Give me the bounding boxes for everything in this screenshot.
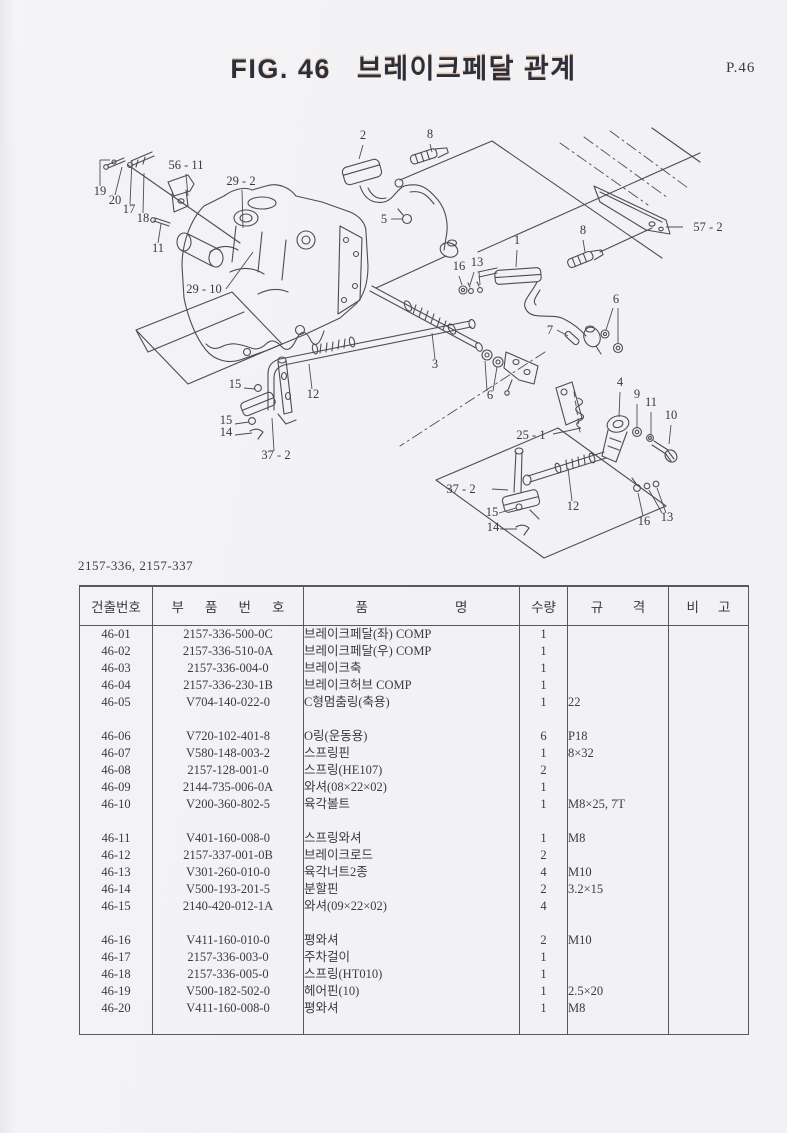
callout-leader-line <box>492 489 508 490</box>
callout-13: 13 <box>471 255 484 269</box>
qty-cell: 2 <box>520 762 568 779</box>
callout-14: 14 <box>220 425 233 439</box>
qty-cell: 1 <box>520 830 568 847</box>
table-row: 46-20V411-160-008-0평와셔1M8 <box>80 1000 749 1017</box>
callout-leader-line <box>115 167 122 195</box>
spec-cell: M10 <box>568 864 669 881</box>
column-header-remark: 비고 <box>669 586 749 626</box>
part-no-cell: V411-160-008-0 <box>153 1000 304 1017</box>
empty-cell <box>304 711 520 728</box>
empty-cell <box>568 813 669 830</box>
part-no-cell: 2157-336-004-0 <box>153 660 304 677</box>
part-no-cell: 2157-336-510-0A <box>153 643 304 660</box>
callout-leader-line <box>432 333 435 359</box>
callout-leader-line <box>606 308 613 330</box>
part-no-cell: V704-140-022-0 <box>153 694 304 711</box>
table-row: 46-07V580-148-003-2스프링핀18×32 <box>80 745 749 762</box>
callout-leader-line <box>583 240 585 252</box>
part-name-cell: 브레이크페달(좌) COMP <box>304 626 520 644</box>
qty-cell: 6 <box>520 728 568 745</box>
table-row: 46-14V500-193-201-5분할핀23.2×15 <box>80 881 749 898</box>
part-no-cell: 2157-337-001-0B <box>153 847 304 864</box>
table-row: 46-05V704-140-022-0C형멈춤링(축용)122 <box>80 694 749 711</box>
table-row: 46-122157-337-001-0B브레이크로드2 <box>80 847 749 864</box>
callout-leader-line <box>669 425 671 444</box>
qty-cell: 1 <box>520 677 568 694</box>
spec-cell <box>568 660 669 677</box>
empty-cell <box>669 915 749 932</box>
spec-cell: M8 <box>568 830 669 847</box>
qty-cell: 1 <box>520 796 568 813</box>
item-no-cell: 46-12 <box>80 847 153 864</box>
table-row: 46-182157-336-005-0스프링(HT010)1 <box>80 966 749 983</box>
callout-1: 1 <box>514 233 520 247</box>
part-name-cell: 스프링(HT010) <box>304 966 520 983</box>
part-name-cell: 브레이크로드 <box>304 847 520 864</box>
part-name-cell: 육각너트2종 <box>304 864 520 881</box>
callout-56-11: 56 - 11 <box>169 158 204 172</box>
callout-15: 15 <box>486 505 499 519</box>
callout-10: 10 <box>665 408 678 422</box>
column-header-spec: 규격 <box>568 586 669 626</box>
spec-cell <box>568 949 669 966</box>
table-row: 46-13V301-260-010-0육각너트2종4M10 <box>80 864 749 881</box>
spec-cell <box>568 626 669 644</box>
empty-cell <box>80 915 153 932</box>
table-row: 46-022157-336-510-0A브레이크페달(우) COMP1 <box>80 643 749 660</box>
callout-leader-line <box>272 418 274 451</box>
qty-cell: 2 <box>520 932 568 949</box>
callout-37-2: 37 - 2 <box>446 482 475 496</box>
remark-cell <box>669 660 749 677</box>
diagram-callouts: 1920171856 - 111129 - 229 - 102858116135… <box>94 127 723 534</box>
callout-37-2: 37 - 2 <box>261 448 290 462</box>
empty-cell <box>153 1017 304 1035</box>
item-no-cell: 46-09 <box>80 779 153 796</box>
table-row: 46-10V200-360-802-5육각볼트1M8×25, 7T <box>80 796 749 813</box>
spec-cell: M8×25, 7T <box>568 796 669 813</box>
callout-16: 16 <box>638 514 651 528</box>
item-no-cell: 46-20 <box>80 1000 153 1017</box>
callout-11: 11 <box>152 241 164 255</box>
remark-cell <box>669 728 749 745</box>
callout-leader-line <box>568 468 572 501</box>
part-no-cell: V411-160-010-0 <box>153 932 304 949</box>
filler-row <box>80 1017 749 1035</box>
qty-cell: 1 <box>520 660 568 677</box>
part-name-cell: 스프링핀 <box>304 745 520 762</box>
callout-20: 20 <box>109 193 122 207</box>
table-row: 46-042157-336-230-1B브레이크허브 COMP1 <box>80 677 749 694</box>
callout-leader-line <box>235 422 249 424</box>
part-name-cell: 브레이크허브 COMP <box>304 677 520 694</box>
table-row: 46-19V500-182-502-0헤어핀(10)12.5×20 <box>80 983 749 1000</box>
callout-57-2: 57 - 2 <box>693 220 722 234</box>
callout-17: 17 <box>123 202 136 216</box>
spec-cell <box>568 966 669 983</box>
callout-leader-line <box>359 145 363 159</box>
qty-cell: 4 <box>520 898 568 915</box>
spec-cell: 22 <box>568 694 669 711</box>
empty-cell <box>669 813 749 830</box>
table-row: 46-172157-336-003-0주차걸이1 <box>80 949 749 966</box>
spec-cell: 2.5×20 <box>568 983 669 1000</box>
item-no-cell: 46-18 <box>80 966 153 983</box>
table-row: 46-152140-420-012-1A와셔(09×22×02)4 <box>80 898 749 915</box>
callout-5: 5 <box>381 212 387 226</box>
spec-cell: 8×32 <box>568 745 669 762</box>
callout-leader-line <box>493 367 497 391</box>
table-row: 46-16V411-160-010-0평와셔2M10 <box>80 932 749 949</box>
callout-6: 6 <box>487 388 493 402</box>
callout-leader-line <box>479 272 480 285</box>
column-header-qty: 수량 <box>520 586 568 626</box>
table-row: 46-11V401-160-008-0스프링와셔1M8 <box>80 830 749 847</box>
remark-cell <box>669 847 749 864</box>
empty-cell <box>304 915 520 932</box>
item-no-cell: 46-16 <box>80 932 153 949</box>
callout-2: 2 <box>360 128 366 142</box>
part-name-cell: 평와셔 <box>304 932 520 949</box>
callout-leader-line <box>143 173 144 213</box>
qty-cell: 2 <box>520 847 568 864</box>
remark-cell <box>669 881 749 898</box>
callout-leader-line <box>459 276 462 285</box>
spec-cell <box>568 847 669 864</box>
spec-cell: M10 <box>568 932 669 949</box>
callout-leader-line <box>235 433 252 435</box>
item-no-cell: 46-14 <box>80 881 153 898</box>
part-no-cell: 2144-735-006-0A <box>153 779 304 796</box>
qty-cell: 1 <box>520 1000 568 1017</box>
item-no-cell: 46-08 <box>80 762 153 779</box>
qty-cell: 1 <box>520 779 568 796</box>
qty-cell: 1 <box>520 966 568 983</box>
callout-4: 4 <box>617 375 624 389</box>
remark-cell <box>669 864 749 881</box>
callout-25-1: 25 - 1 <box>516 428 545 442</box>
spec-cell: P18 <box>568 728 669 745</box>
item-no-cell: 46-04 <box>80 677 153 694</box>
empty-cell <box>520 1017 568 1035</box>
callout-13: 13 <box>661 510 674 524</box>
part-name-cell: 육각볼트 <box>304 796 520 813</box>
callout-12: 12 <box>307 387 320 401</box>
callout-leader-line <box>619 392 620 417</box>
part-no-cell: V500-193-201-5 <box>153 881 304 898</box>
part-no-cell: V200-360-802-5 <box>153 796 304 813</box>
qty-cell: 1 <box>520 983 568 1000</box>
spec-cell <box>568 643 669 660</box>
empty-cell <box>520 915 568 932</box>
part-name-cell: 브레이크페달(우) COMP <box>304 643 520 660</box>
callout-29-2: 29 - 2 <box>226 174 255 188</box>
empty-cell <box>153 711 304 728</box>
callout-leader-line <box>638 493 643 516</box>
empty-cell <box>304 813 520 830</box>
part-name-cell: 주차걸이 <box>304 949 520 966</box>
callout-leader-line <box>226 252 253 289</box>
callout-11: 11 <box>645 395 657 409</box>
part-no-cell: V401-160-008-0 <box>153 830 304 847</box>
callout-7: 7 <box>547 323 553 337</box>
part-no-cell: V500-182-502-0 <box>153 983 304 1000</box>
part-no-cell: V580-148-003-2 <box>153 745 304 762</box>
empty-cell <box>80 1017 153 1035</box>
empty-cell <box>520 711 568 728</box>
empty-cell <box>568 1017 669 1035</box>
empty-cell <box>669 1017 749 1035</box>
spacer-row <box>80 711 749 728</box>
callout-leader-line <box>309 364 312 389</box>
qty-cell: 1 <box>520 949 568 966</box>
callout-15: 15 <box>229 377 242 391</box>
remark-cell <box>669 745 749 762</box>
table-row: 46-092144-735-006-0A와셔(08×22×02)1 <box>80 779 749 796</box>
table-row: 46-032157-336-004-0브레이크축1 <box>80 660 749 677</box>
part-name-cell: 브레이크축 <box>304 660 520 677</box>
empty-cell <box>520 813 568 830</box>
item-no-cell: 46-03 <box>80 660 153 677</box>
empty-cell <box>80 711 153 728</box>
spec-cell: M8 <box>568 1000 669 1017</box>
qty-cell: 1 <box>520 694 568 711</box>
callout-3: 3 <box>432 357 438 371</box>
remark-cell <box>669 1000 749 1017</box>
part-name-cell: C형멈춤링(축용) <box>304 694 520 711</box>
part-name-cell: 스프링와셔 <box>304 830 520 847</box>
callout-8: 8 <box>580 223 586 237</box>
part-name-cell: 와셔(08×22×02) <box>304 779 520 796</box>
remark-cell <box>669 677 749 694</box>
spec-cell <box>568 898 669 915</box>
callout-leader-line <box>244 388 255 389</box>
remark-cell <box>669 949 749 966</box>
part-no-cell: 2157-336-230-1B <box>153 677 304 694</box>
callout-9: 9 <box>634 387 640 401</box>
spec-cell: 3.2×15 <box>568 881 669 898</box>
remark-cell <box>669 762 749 779</box>
callout-leader-line <box>485 361 487 391</box>
item-no-cell: 46-01 <box>80 626 153 644</box>
qty-cell: 4 <box>520 864 568 881</box>
qty-cell: 1 <box>520 643 568 660</box>
qty-cell: 2 <box>520 881 568 898</box>
remark-cell <box>669 626 749 644</box>
callout-6: 6 <box>613 292 619 306</box>
item-no-cell: 46-19 <box>80 983 153 1000</box>
item-no-cell: 46-15 <box>80 898 153 915</box>
callout-leader-line <box>470 272 474 285</box>
remark-cell <box>669 966 749 983</box>
parts-table: 건출번호부품번호품명수량규격비고 46-012157-336-500-0C브레이… <box>79 585 749 1035</box>
callout-29-10: 29 - 10 <box>186 282 221 296</box>
part-name-cell: 스프링(HE107) <box>304 762 520 779</box>
callout-19: 19 <box>94 184 107 198</box>
empty-cell <box>153 915 304 932</box>
spec-cell <box>568 677 669 694</box>
part-name-cell: 평와셔 <box>304 1000 520 1017</box>
table-row: 46-06V720-102-401-8O링(운동용)6P18 <box>80 728 749 745</box>
spacer-row <box>80 915 749 932</box>
part-no-cell: V720-102-401-8 <box>153 728 304 745</box>
remark-cell <box>669 830 749 847</box>
remark-cell <box>669 694 749 711</box>
callout-18: 18 <box>137 211 150 225</box>
empty-cell <box>153 813 304 830</box>
catalog-page: FIG. 46브레이크페달 관계 P.46 <box>0 0 787 1133</box>
part-no-cell: 2157-128-001-0 <box>153 762 304 779</box>
model-numbers: 2157-336, 2157-337 <box>78 558 193 574</box>
part-name-cell: 헤어핀(10) <box>304 983 520 1000</box>
exploded-parts-diagram: 1920171856 - 111129 - 229 - 102858116135… <box>0 0 787 575</box>
callout-leader-line <box>516 250 517 267</box>
column-header-part-name: 품명 <box>304 586 520 626</box>
remark-cell <box>669 932 749 949</box>
empty-cell <box>568 711 669 728</box>
qty-cell: 1 <box>520 745 568 762</box>
callout-leader-line <box>242 190 243 228</box>
item-no-cell: 46-13 <box>80 864 153 881</box>
spec-cell <box>568 762 669 779</box>
table-row: 46-012157-336-500-0C브레이크페달(좌) COMP1 <box>80 626 749 644</box>
table-row: 46-082157-128-001-0스프링(HE107)2 <box>80 762 749 779</box>
item-no-cell: 46-10 <box>80 796 153 813</box>
remark-cell <box>669 898 749 915</box>
part-no-cell: 2140-420-012-1A <box>153 898 304 915</box>
empty-cell <box>304 1017 520 1035</box>
column-header-part-no: 부품번호 <box>153 586 304 626</box>
parts-table-header: 건출번호부품번호품명수량규격비고 <box>80 586 749 626</box>
item-no-cell: 46-11 <box>80 830 153 847</box>
column-header-item-no: 건출번호 <box>80 586 153 626</box>
callout-14: 14 <box>487 520 500 534</box>
spacer-row <box>80 813 749 830</box>
remark-cell <box>669 643 749 660</box>
part-name-cell: O링(운동용) <box>304 728 520 745</box>
spec-cell <box>568 779 669 796</box>
empty-cell <box>80 813 153 830</box>
part-name-cell: 와셔(09×22×02) <box>304 898 520 915</box>
part-no-cell: 2157-336-005-0 <box>153 966 304 983</box>
part-no-cell: 2157-336-003-0 <box>153 949 304 966</box>
empty-cell <box>568 915 669 932</box>
part-name-cell: 분할핀 <box>304 881 520 898</box>
item-no-cell: 46-06 <box>80 728 153 745</box>
callout-8: 8 <box>427 127 433 141</box>
item-no-cell: 46-02 <box>80 643 153 660</box>
part-no-cell: 2157-336-500-0C <box>153 626 304 644</box>
remark-cell <box>669 983 749 1000</box>
callout-16: 16 <box>453 259 466 273</box>
empty-cell <box>669 711 749 728</box>
callout-12: 12 <box>567 499 580 513</box>
diagram-line-art <box>104 128 700 558</box>
remark-cell <box>669 779 749 796</box>
remark-cell <box>669 796 749 813</box>
item-no-cell: 46-07 <box>80 745 153 762</box>
callout-leader-line <box>430 144 432 152</box>
item-no-cell: 46-05 <box>80 694 153 711</box>
item-no-cell: 46-17 <box>80 949 153 966</box>
qty-cell: 1 <box>520 626 568 644</box>
part-no-cell: V301-260-010-0 <box>153 864 304 881</box>
